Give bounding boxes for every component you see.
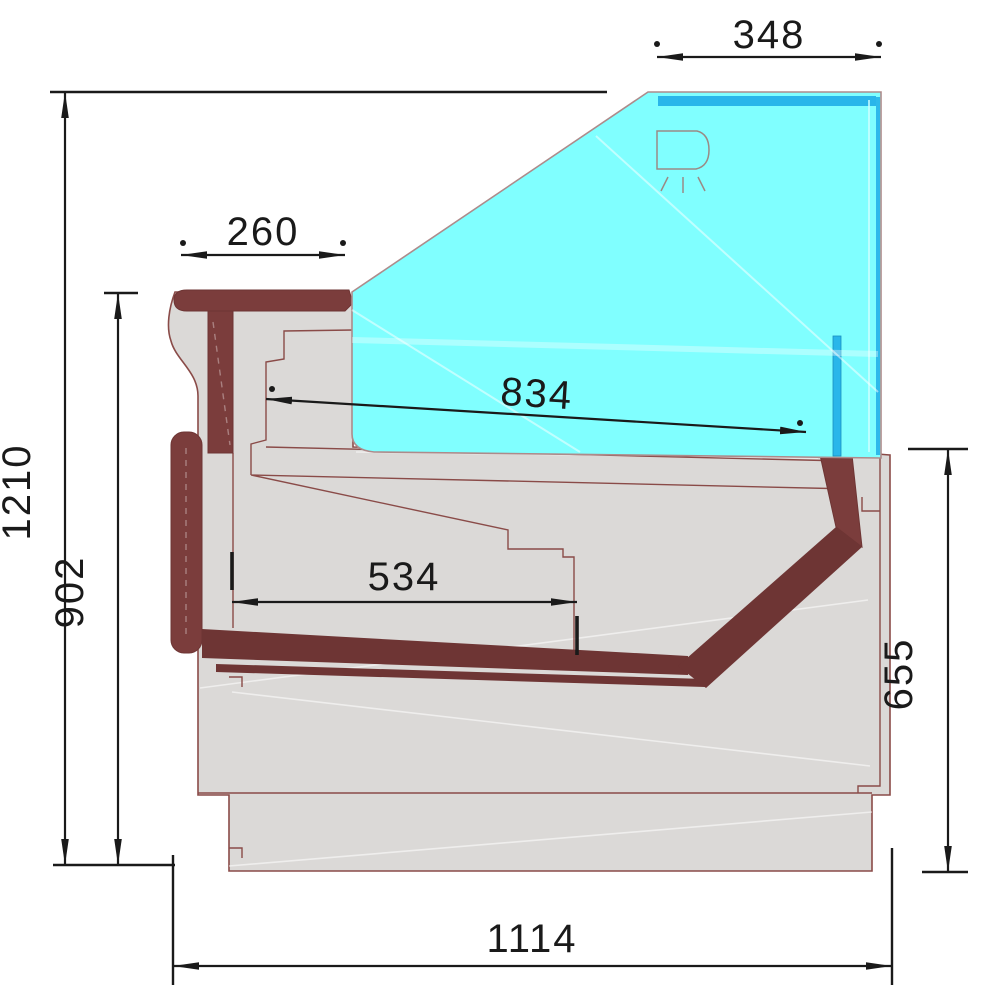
dim-dot — [340, 240, 346, 246]
dim-dot — [797, 420, 803, 426]
canopy-top-strip — [658, 96, 876, 106]
counter-support-column — [208, 311, 233, 453]
dim-label-canopy-width: 348 — [733, 13, 806, 57]
dim-dot — [180, 240, 186, 246]
dim-label-overall-height: 1210 — [0, 444, 39, 541]
dim-label-glass-length: 834 — [499, 370, 574, 418]
dim-label-shelf-depth: 534 — [368, 555, 441, 599]
glass-panel — [352, 92, 881, 458]
dim-label-rear-height: 655 — [877, 638, 921, 711]
dim-dot — [269, 386, 275, 392]
dim-dot — [654, 41, 660, 47]
glass-canopy — [352, 92, 881, 458]
dimension-overall-height: 1210 — [0, 92, 65, 865]
dim-label-overall-depth: 1114 — [486, 917, 577, 961]
dim-dot — [876, 41, 882, 47]
dimension-overall-depth: 1114 — [173, 917, 892, 966]
dim-label-counter-height: 902 — [48, 556, 92, 629]
dimension-counter-depth: 260 — [181, 210, 345, 255]
counter-top — [174, 290, 353, 311]
dimension-canopy-width: 348 — [657, 13, 881, 57]
technical-drawing-page: 348 260 834 534 1210 902 655 111 — [0, 0, 1000, 1000]
dimension-counter-height: 902 — [48, 293, 118, 865]
display-counter-cross-section: 348 260 834 534 1210 902 655 111 — [0, 0, 1000, 1000]
dim-label-counter-depth: 260 — [227, 210, 300, 254]
